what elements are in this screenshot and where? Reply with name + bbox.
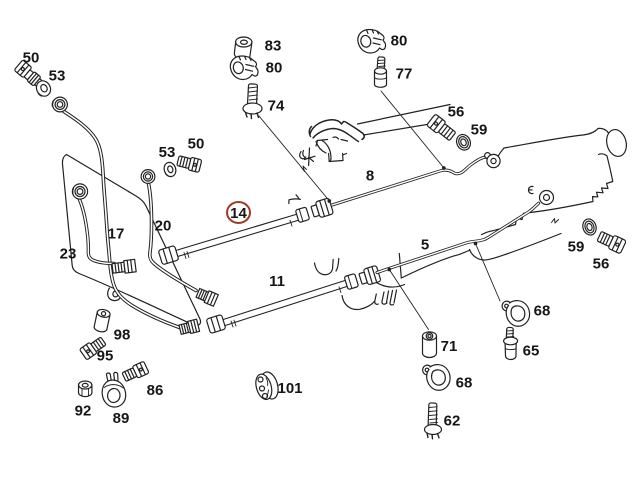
svg-text:68: 68 xyxy=(534,303,551,320)
svg-text:50: 50 xyxy=(188,136,205,153)
svg-text:77: 77 xyxy=(396,66,413,83)
svg-text:56: 56 xyxy=(593,256,610,273)
svg-text:68: 68 xyxy=(456,375,473,392)
svg-text:95: 95 xyxy=(97,348,114,365)
svg-text:56: 56 xyxy=(448,104,465,121)
svg-text:92: 92 xyxy=(75,403,92,420)
svg-text:5: 5 xyxy=(421,237,429,254)
svg-text:80: 80 xyxy=(391,33,408,50)
svg-text:50: 50 xyxy=(23,50,40,67)
svg-text:8: 8 xyxy=(366,168,374,185)
svg-text:17: 17 xyxy=(108,226,125,243)
svg-text:53: 53 xyxy=(159,144,176,161)
svg-text:74: 74 xyxy=(268,98,285,115)
svg-text:59: 59 xyxy=(471,122,488,139)
svg-text:14: 14 xyxy=(230,205,247,222)
svg-text:20: 20 xyxy=(155,218,172,235)
svg-text:80: 80 xyxy=(266,60,283,77)
svg-text:23: 23 xyxy=(60,246,77,263)
svg-text:86: 86 xyxy=(147,382,164,399)
svg-text:98: 98 xyxy=(114,327,131,344)
svg-text:59: 59 xyxy=(568,239,585,256)
svg-text:62: 62 xyxy=(444,413,461,430)
svg-text:89: 89 xyxy=(113,410,130,427)
svg-text:71: 71 xyxy=(441,338,458,355)
svg-text:53: 53 xyxy=(49,68,66,85)
svg-text:11: 11 xyxy=(269,273,285,290)
svg-text:101: 101 xyxy=(277,380,302,397)
svg-text:83: 83 xyxy=(265,38,282,55)
svg-text:65: 65 xyxy=(523,343,540,360)
